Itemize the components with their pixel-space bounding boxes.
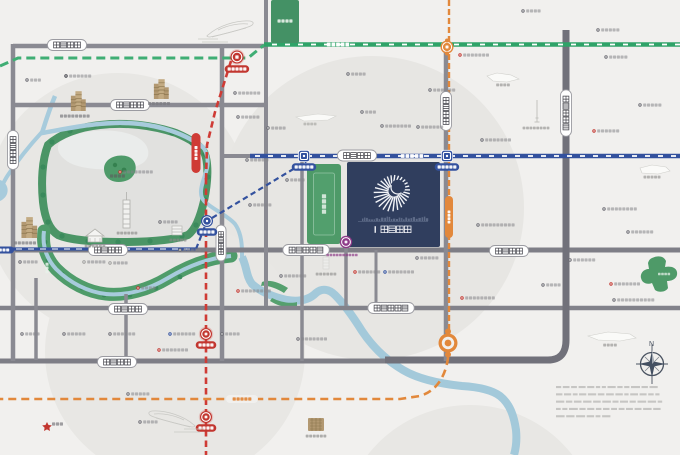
svg-text:N: N — [649, 341, 654, 348]
